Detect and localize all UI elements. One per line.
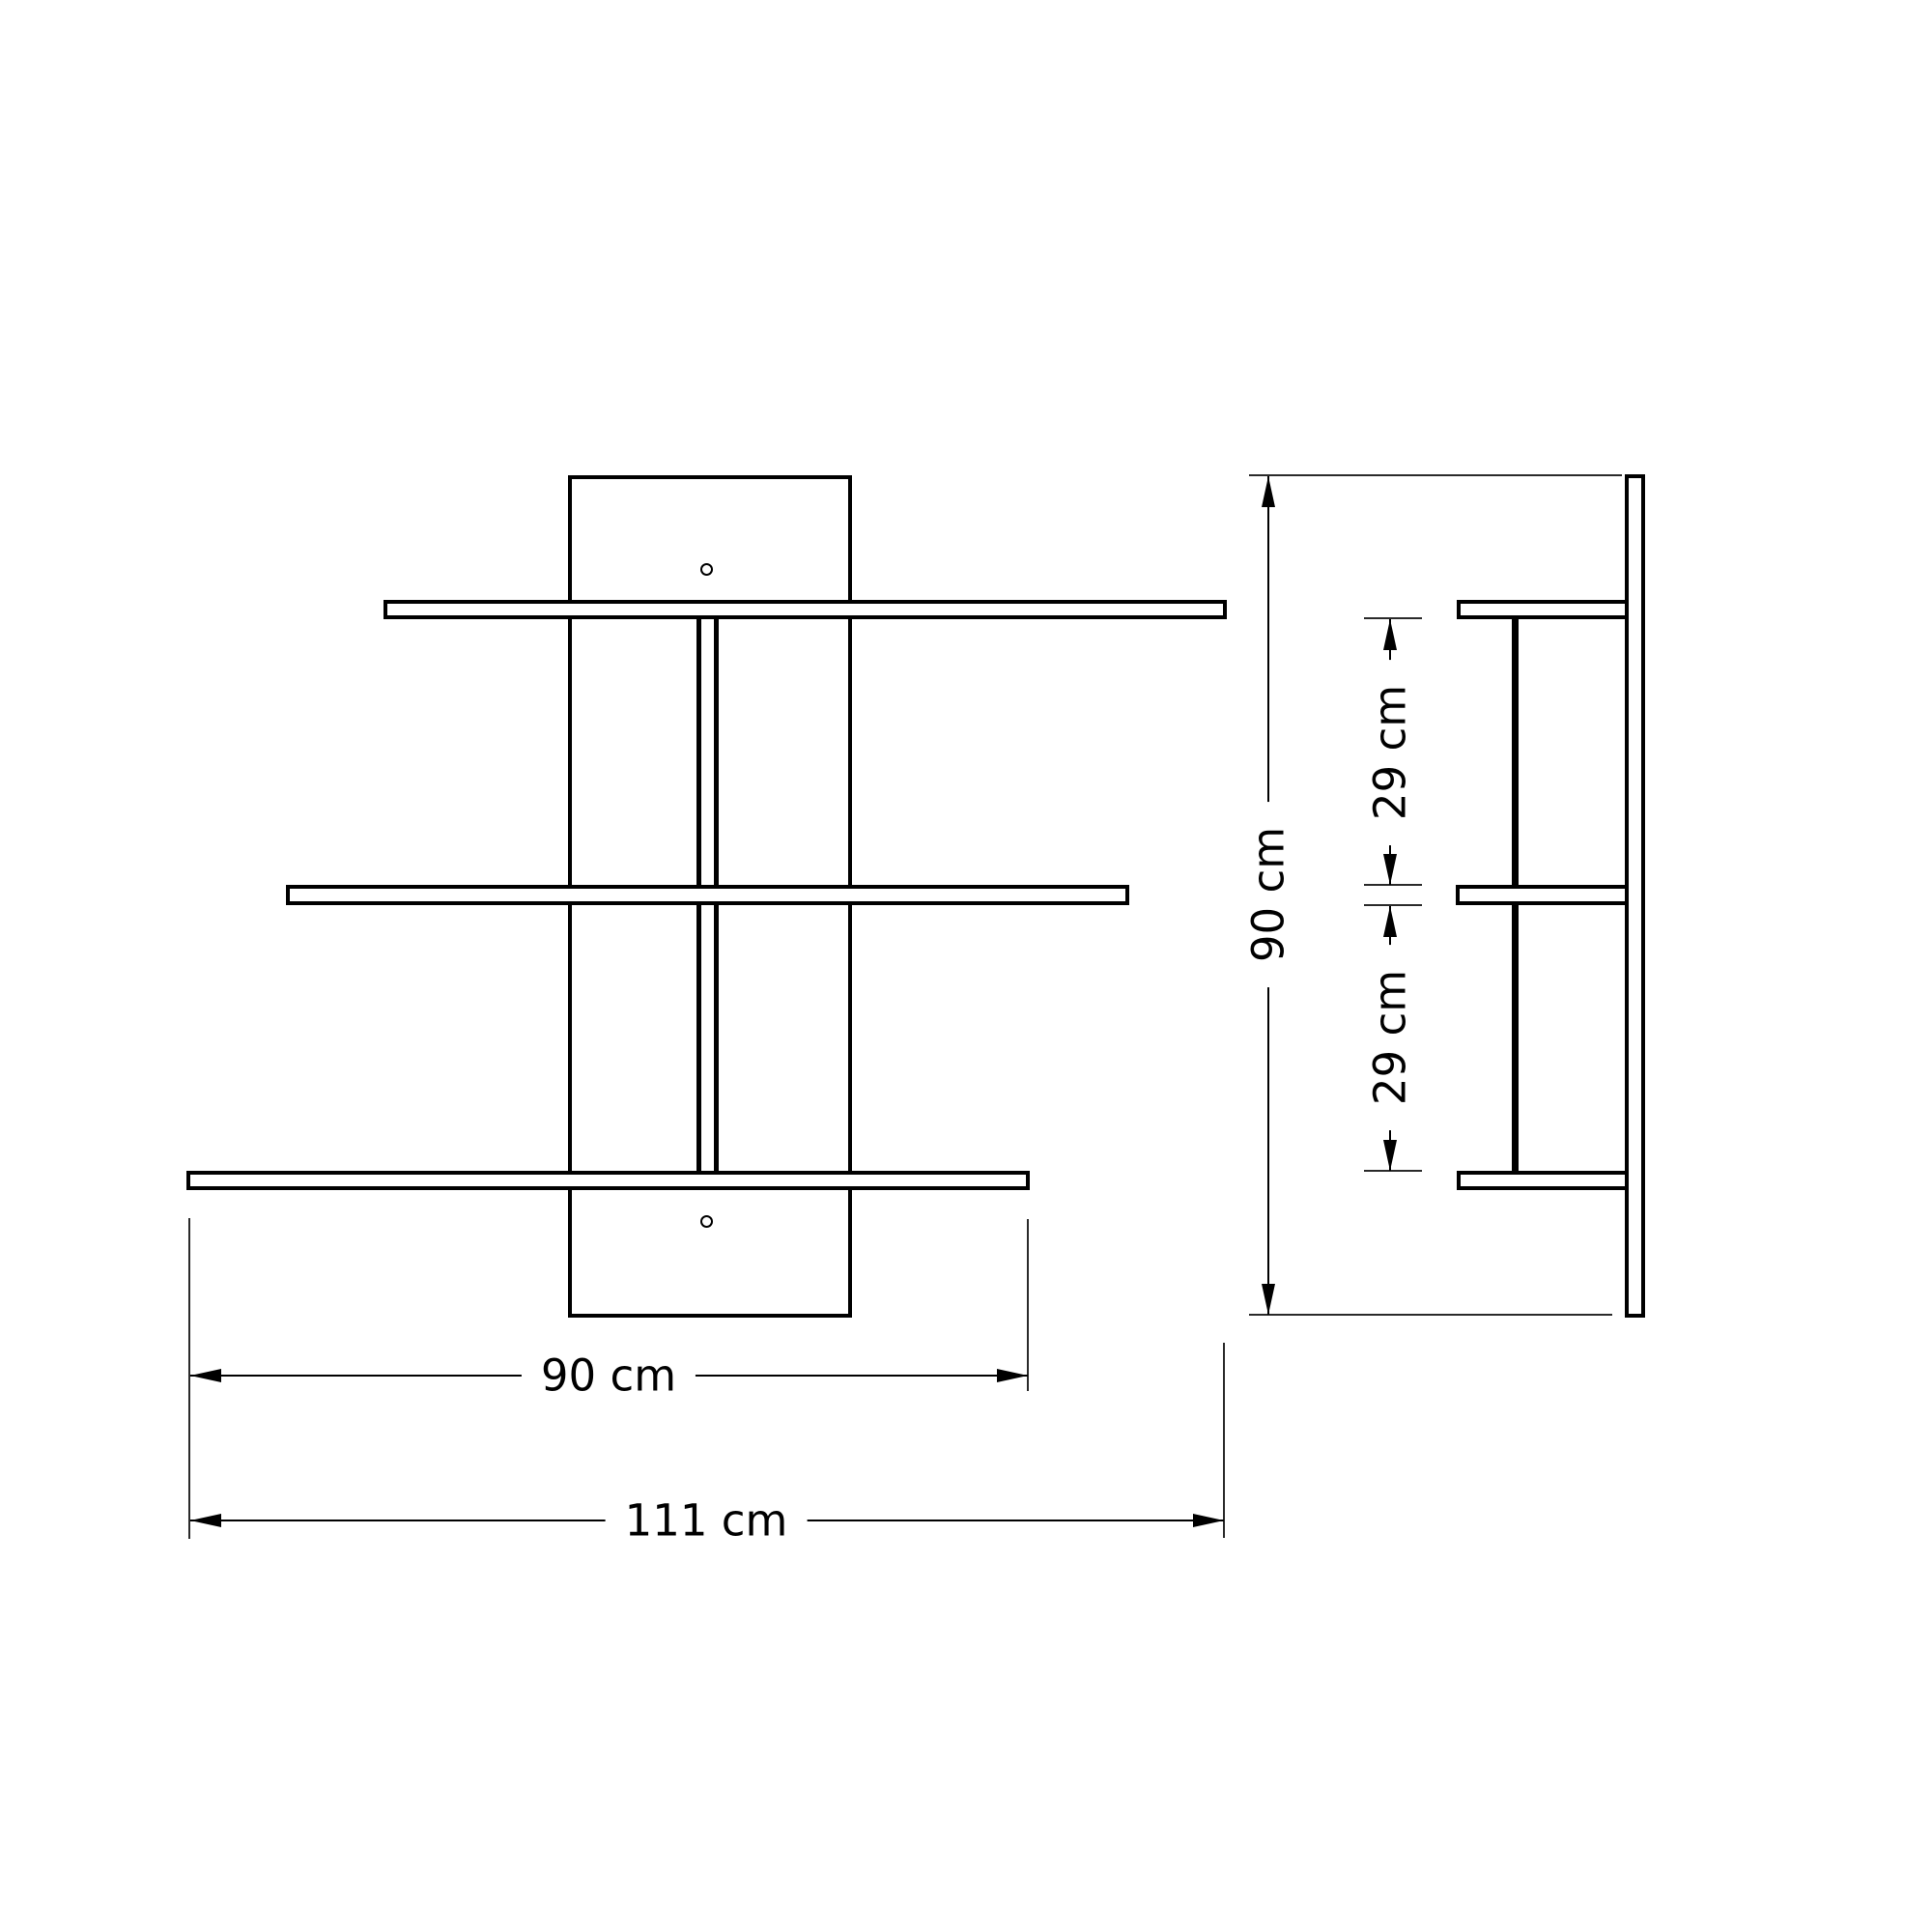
side-shelf-top xyxy=(1457,600,1629,619)
screw-hole-bottom xyxy=(700,1215,713,1228)
arrowhead-left xyxy=(190,1369,221,1382)
dim-gap-lower-label: 29 cm xyxy=(1366,945,1414,1130)
front-shelf-bottom xyxy=(186,1171,1030,1190)
arrowhead-left xyxy=(190,1514,221,1527)
extension-line xyxy=(1249,474,1622,476)
arrowhead-up xyxy=(1262,476,1275,507)
extension-line xyxy=(1223,1343,1225,1538)
technical-drawing-canvas: 90 cm 29 cm 29 cm 90 cm 111 cm xyxy=(0,0,1932,1932)
side-shelf-middle xyxy=(1456,885,1629,905)
arrowhead-right xyxy=(997,1369,1028,1382)
arrowhead-up xyxy=(1383,619,1397,650)
arrowhead-up xyxy=(1383,906,1397,937)
extension-line xyxy=(1249,1314,1612,1316)
dim-gap-upper-label: 29 cm xyxy=(1366,660,1414,845)
arrowhead-down xyxy=(1383,1140,1397,1171)
dim-shelf-width-label: 90 cm xyxy=(522,1351,696,1400)
front-shelf-top xyxy=(384,600,1227,619)
dim-height-label: 90 cm xyxy=(1244,802,1293,987)
front-shelf-middle xyxy=(286,885,1129,905)
extension-line xyxy=(1027,1219,1029,1391)
arrowhead-right xyxy=(1193,1514,1224,1527)
screw-hole-top xyxy=(700,563,713,576)
side-shelf-bottom xyxy=(1457,1171,1629,1190)
arrowhead-down xyxy=(1383,854,1397,885)
arrowhead-down xyxy=(1262,1284,1275,1315)
dim-total-width-label: 111 cm xyxy=(606,1496,808,1545)
